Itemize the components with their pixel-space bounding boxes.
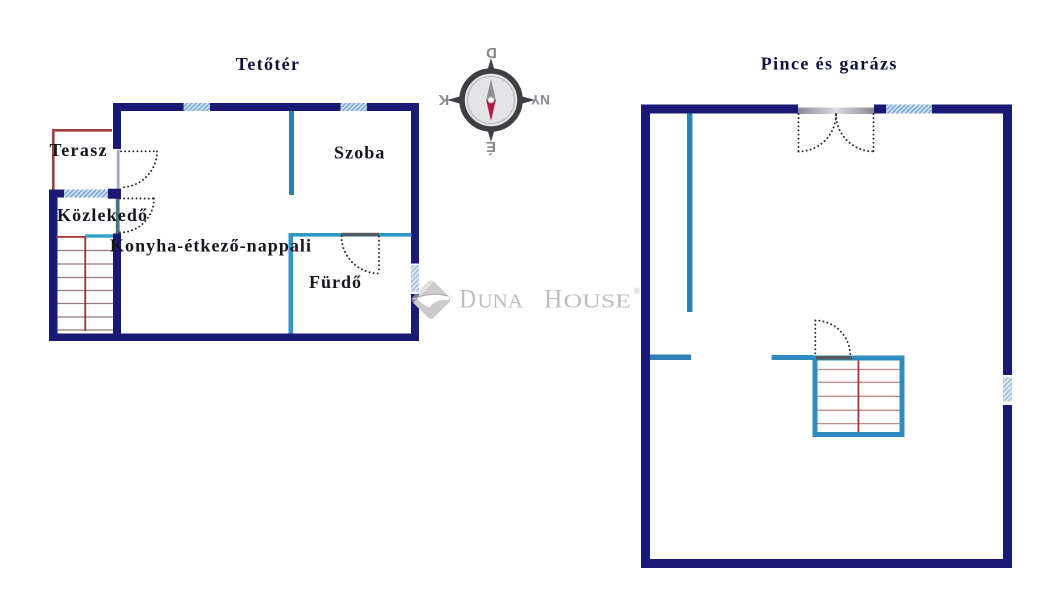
svg-text:Fürdő: Fürdő (309, 272, 361, 292)
svg-text:D: D (460, 285, 477, 314)
svg-text:D: D (486, 44, 497, 61)
svg-text:Tetőtér: Tetőtér (236, 54, 299, 74)
svg-text:K: K (438, 91, 449, 108)
svg-text:H: H (544, 285, 563, 314)
svg-text:Konyha-étkező-nappali: Konyha-étkező-nappali (110, 236, 311, 256)
svg-text:OUSE: OUSE (564, 291, 632, 313)
svg-text:Szoba: Szoba (334, 143, 384, 163)
svg-text:®: ® (634, 286, 641, 296)
svg-text:Pince és garázs: Pince és garázs (761, 54, 897, 74)
svg-text:Terasz: Terasz (50, 140, 107, 160)
svg-text:É: É (486, 138, 496, 155)
svg-text:UNA: UNA (478, 291, 524, 313)
svg-text:NY: NY (531, 92, 550, 107)
svg-text:Közlekedő: Közlekedő (57, 205, 147, 225)
